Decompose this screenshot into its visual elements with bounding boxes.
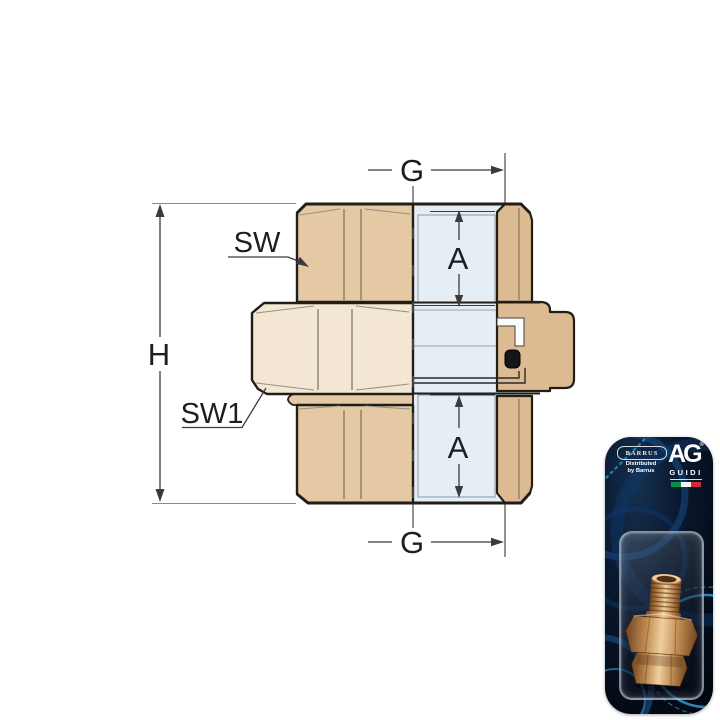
callout-label-sw: SW <box>234 227 281 259</box>
barrus-logo: BARRUS <box>617 446 667 460</box>
wall-bottom <box>497 396 532 503</box>
dim-label-a-top: A <box>448 241 469 276</box>
bottom-neck-collar <box>288 394 413 405</box>
bottom-hex-body <box>297 405 413 503</box>
technical-drawing-page: G G H A A SW SW1 <box>0 0 720 720</box>
distributed-line1: Distributed <box>617 461 665 468</box>
product-packaging: BARRUS Distributed by Barrus AG® GUIDI <box>605 437 713 714</box>
barrus-logo-text: BARRUS <box>626 450 659 457</box>
dim-label-h: H <box>148 337 170 372</box>
registered-mark: ® <box>700 442 704 448</box>
wall-top <box>497 204 532 302</box>
distributed-text: Distributed by Barrus <box>617 461 665 475</box>
ag-monogram: AG® <box>663 443 709 467</box>
callout-label-sw1: SW1 <box>181 398 244 430</box>
guidi-tagline-bar <box>670 479 702 481</box>
top-hex-body <box>297 204 413 302</box>
union-nut-body <box>252 303 413 394</box>
dim-label-g-bottom: G <box>400 525 424 560</box>
blister-pack <box>619 531 704 700</box>
guidi-wordmark: GUIDI <box>663 468 709 477</box>
distributed-line2: by Barrus <box>617 468 665 475</box>
italy-flag <box>670 482 702 487</box>
o-ring-seal <box>505 350 520 368</box>
dim-label-a-bottom: A <box>448 430 469 465</box>
guidi-maker-logo: AG® GUIDI <box>663 443 709 487</box>
dim-label-g-top: G <box>400 153 424 188</box>
brass-fitting-photo <box>621 533 702 698</box>
